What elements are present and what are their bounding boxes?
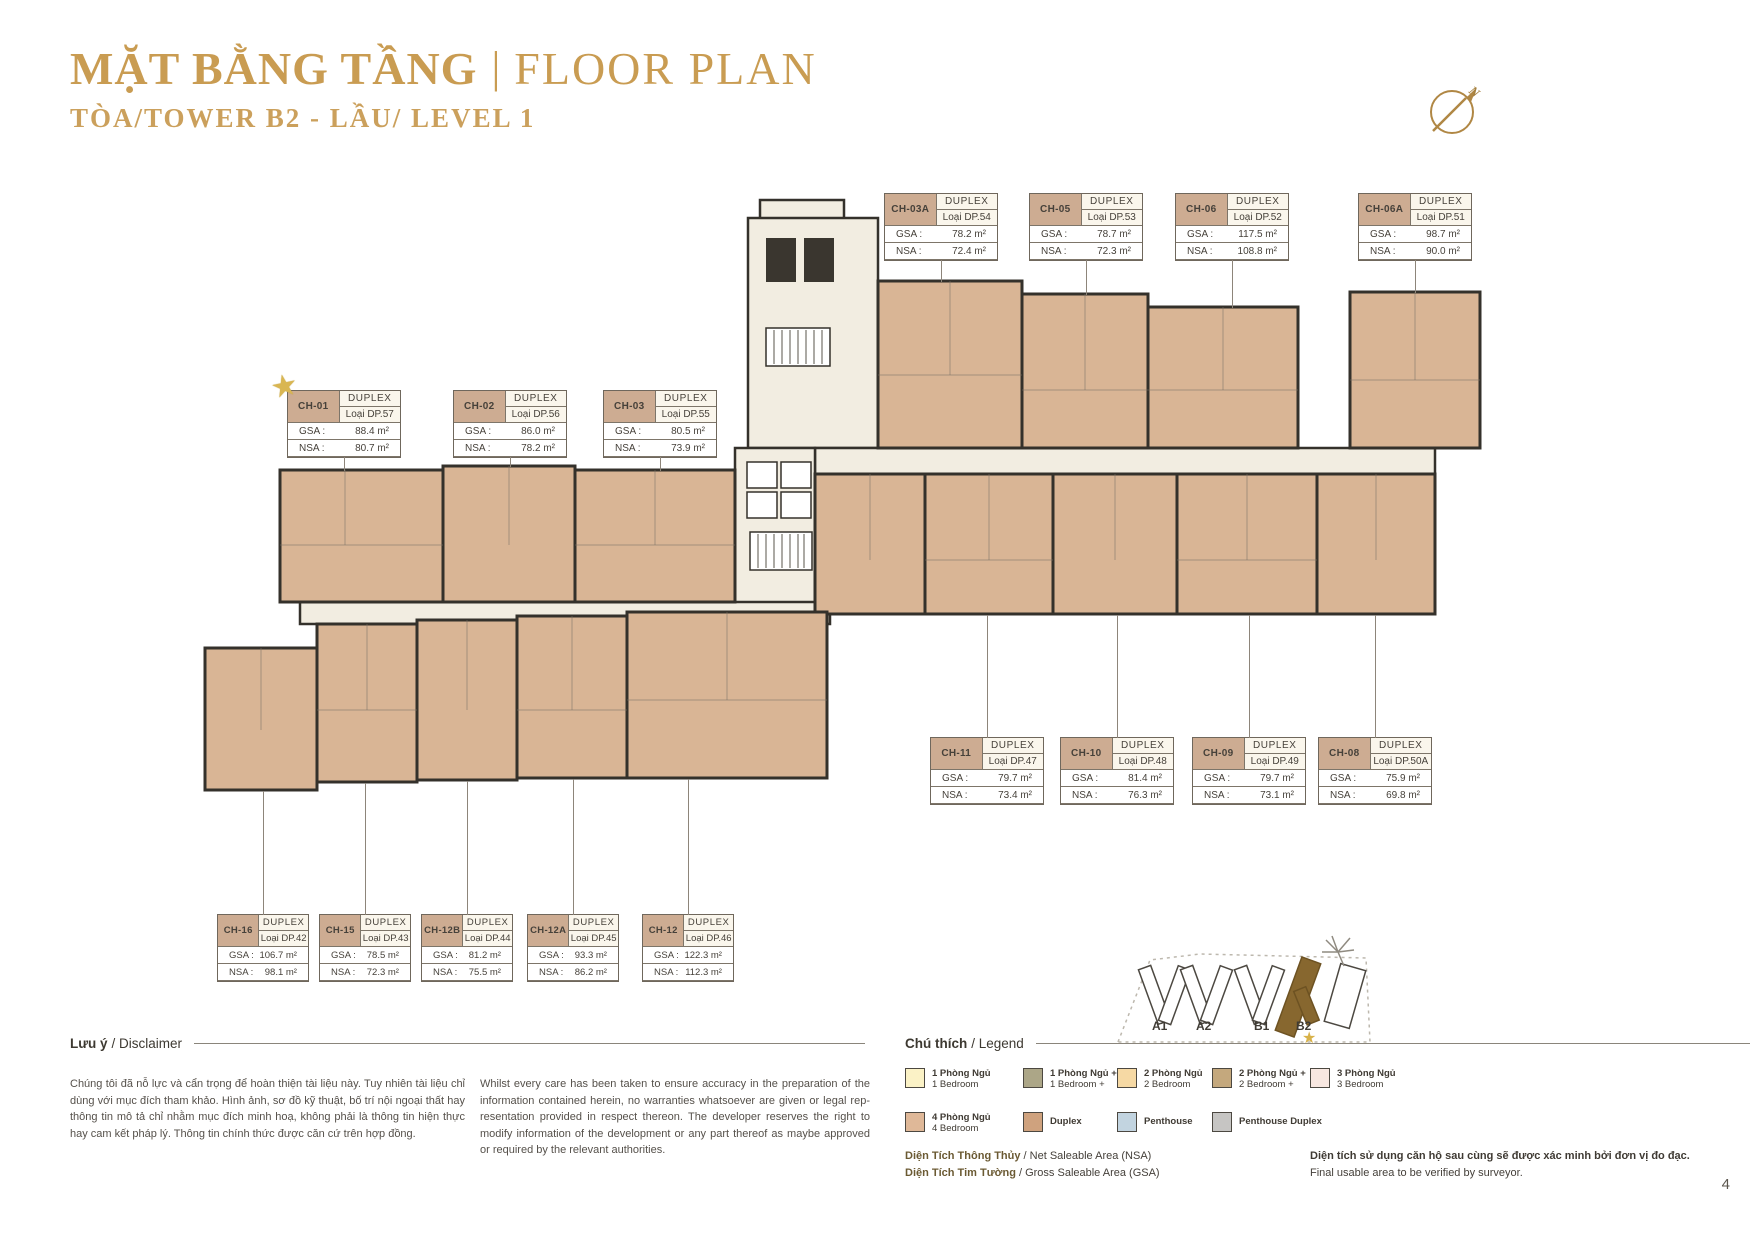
divider-line bbox=[1036, 1043, 1750, 1044]
unit-card: CH-03A DUPLEX Loại DP.54 GSA :78.2 m² NS… bbox=[884, 193, 998, 261]
leader-line bbox=[987, 615, 988, 738]
unit-card: CH-08 DUPLEX Loại DP.50A GSA :75.9 m² NS… bbox=[1318, 737, 1432, 805]
legend-heading: Chú thích / Legend bbox=[905, 1036, 1750, 1051]
gsa-value: 79.7 m² bbox=[998, 773, 1032, 784]
unit-code: CH-16 bbox=[218, 915, 259, 947]
gsa-label: GSA : bbox=[539, 950, 564, 961]
legend-swatch bbox=[905, 1068, 925, 1088]
unit-card: CH-12A DUPLEX Loại DP.45 GSA :93.3 m² NS… bbox=[527, 914, 619, 982]
gsa-value: 78.5 m² bbox=[367, 950, 399, 961]
unit-card: CH-10 DUPLEX Loại DP.48 GSA :81.4 m² NSA… bbox=[1060, 737, 1174, 805]
nsa-value: 90.0 m² bbox=[1426, 246, 1460, 257]
nsa-label: NSA : bbox=[654, 967, 678, 978]
nsa-label: NSA : bbox=[229, 967, 253, 978]
nsa-value: 73.1 m² bbox=[1260, 790, 1294, 801]
nsa-label: NSA : bbox=[1187, 246, 1213, 257]
leader-line bbox=[660, 457, 661, 471]
unit-type-label: DUPLEX bbox=[983, 738, 1043, 754]
gsa-value: 78.7 m² bbox=[1097, 229, 1131, 240]
gsa-label: GSA : bbox=[942, 773, 968, 784]
unit-type-label: DUPLEX bbox=[1082, 194, 1142, 210]
unit-type-label: DUPLEX bbox=[569, 915, 618, 931]
unit-layout-label: Loại DP.46 bbox=[684, 931, 733, 947]
legend-item: Penthouse bbox=[1117, 1112, 1193, 1132]
legend-swatch bbox=[1023, 1112, 1043, 1132]
leader-line bbox=[467, 781, 468, 915]
nsa-value: 112.3 m² bbox=[685, 967, 722, 978]
unit-type-label: DUPLEX bbox=[656, 391, 716, 407]
nsa-label: NSA : bbox=[539, 967, 563, 978]
brochure-page: MẶT BẰNG TẦNG | FLOOR PLAN TÒA/TOWER B2 … bbox=[0, 0, 1754, 1241]
unit-card: CH-12B DUPLEX Loại DP.44 GSA :81.2 m² NS… bbox=[421, 914, 513, 982]
gsa-value: 80.5 m² bbox=[671, 426, 705, 437]
nsa-value: 69.8 m² bbox=[1386, 790, 1420, 801]
stairs-icon bbox=[766, 328, 830, 366]
unit-code: CH-10 bbox=[1061, 738, 1113, 770]
legend-label-vn: Penthouse bbox=[1144, 1116, 1193, 1127]
nsa-value: 76.3 m² bbox=[1128, 790, 1162, 801]
gsa-value: 98.7 m² bbox=[1426, 229, 1460, 240]
compass-icon: N bbox=[1431, 82, 1483, 133]
nsa-label: NSA : bbox=[1370, 246, 1396, 257]
legend-swatch bbox=[905, 1112, 925, 1132]
gsa-value: 117.5 m² bbox=[1238, 229, 1277, 240]
gsa-label: GSA : bbox=[654, 950, 679, 961]
unit-card: CH-03 DUPLEX Loại DP.55 GSA :80.5 m² NSA… bbox=[603, 390, 717, 458]
surveyor-note: Diện tích sử dụng căn hộ sau cùng sẽ đượ… bbox=[1310, 1148, 1740, 1182]
unit-layout-label: Loại DP.42 bbox=[259, 931, 308, 947]
disclaimer-heading: Lưu ý / Disclaimer bbox=[70, 1036, 865, 1051]
nsa-value: 72.3 m² bbox=[1097, 246, 1131, 257]
nsa-value: 72.3 m² bbox=[367, 967, 399, 978]
unit-code: CH-03 bbox=[604, 391, 656, 423]
unit-type-label: DUPLEX bbox=[1411, 194, 1471, 210]
unit-layout-label: Loại DP.54 bbox=[937, 210, 997, 226]
gsa-label: GSA : bbox=[1370, 229, 1396, 240]
legend-label-vn: 2 Phòng Ngủ bbox=[1144, 1068, 1203, 1079]
stairs-icon bbox=[750, 532, 812, 570]
tower-b1-footprint bbox=[1234, 965, 1284, 1024]
nsa-label: NSA : bbox=[1204, 790, 1230, 801]
legend-label-en: 2 Bedroom bbox=[1144, 1079, 1190, 1090]
gsa-label: GSA : bbox=[1330, 773, 1356, 784]
gsa-value: 81.4 m² bbox=[1128, 773, 1162, 784]
nsa-definition-vn: Diện Tích Thông Thủy bbox=[905, 1150, 1021, 1162]
minimap-label-a2: A2 bbox=[1196, 1019, 1212, 1033]
legend-swatch bbox=[1212, 1112, 1232, 1132]
divider-line bbox=[194, 1043, 865, 1044]
nsa-value: 86.2 m² bbox=[575, 967, 607, 978]
legend-label-vn: 1 Phòng Ngủ + bbox=[1050, 1068, 1117, 1079]
gsa-label: GSA : bbox=[1204, 773, 1230, 784]
legend-swatch bbox=[1117, 1068, 1137, 1088]
gsa-label: GSA : bbox=[615, 426, 641, 437]
gsa-label: GSA : bbox=[433, 950, 458, 961]
area-definitions: Diện Tích Thông Thủy / Net Saleable Area… bbox=[905, 1148, 1160, 1182]
legend-item: 4 Phòng Ngủ 4 Bedroom bbox=[905, 1112, 991, 1134]
legend-item: 1 Phòng Ngủ + 1 Bedroom + bbox=[1023, 1068, 1117, 1090]
nsa-value: 73.9 m² bbox=[671, 443, 705, 454]
gsa-definition-vn: Diện Tích Tim Tường bbox=[905, 1167, 1016, 1179]
site-minimap: A1 A2 B1 B2 ★ bbox=[1118, 936, 1370, 1047]
nsa-value: 78.2 m² bbox=[521, 443, 555, 454]
unit-code: CH-15 bbox=[320, 915, 361, 947]
unit-layout-label: Loại DP.44 bbox=[463, 931, 512, 947]
floor-plan-canvas: N A1 A2 B1 B2 bbox=[0, 0, 1754, 1241]
nsa-value: 75.5 m² bbox=[469, 967, 501, 978]
disclaimer-text-vietnamese: Chúng tôi đã nỗ lực và cẩn trọng để hoàn… bbox=[70, 1076, 465, 1142]
nsa-label: NSA : bbox=[433, 967, 457, 978]
tower-right-footprint bbox=[1324, 964, 1366, 1029]
nsa-label: NSA : bbox=[299, 443, 325, 454]
gsa-label: GSA : bbox=[331, 950, 356, 961]
unit-layout-label: Loại DP.55 bbox=[656, 407, 716, 423]
unit-layout-label: Loại DP.51 bbox=[1411, 210, 1471, 226]
legend-label-en: 1 Bedroom + bbox=[1050, 1079, 1105, 1090]
leader-line bbox=[1117, 615, 1118, 738]
unit-layout-label: Loại DP.57 bbox=[340, 407, 400, 423]
gsa-definition-en: / Gross Saleable Area (GSA) bbox=[1016, 1167, 1160, 1179]
nsa-label: NSA : bbox=[615, 443, 641, 454]
unit-code: CH-09 bbox=[1193, 738, 1245, 770]
unit-type-label: DUPLEX bbox=[259, 915, 308, 931]
unit-type-label: DUPLEX bbox=[937, 194, 997, 210]
unit-card: CH-06A DUPLEX Loại DP.51 GSA :98.7 m² NS… bbox=[1358, 193, 1472, 261]
unit-card: CH-02 DUPLEX Loại DP.56 GSA :86.0 m² NSA… bbox=[453, 390, 567, 458]
unit-card: CH-15 DUPLEX Loại DP.43 GSA :78.5 m² NSA… bbox=[319, 914, 411, 982]
leader-line bbox=[941, 260, 942, 282]
unit-layout-label: Loại DP.52 bbox=[1228, 210, 1288, 226]
legend-label-vn: 2 Phòng Ngủ + bbox=[1239, 1068, 1306, 1079]
star-icon: ★ bbox=[268, 370, 301, 405]
minimap-label-a1: A1 bbox=[1152, 1019, 1168, 1033]
unit-card: CH-16 DUPLEX Loại DP.42 GSA :106.7 m² NS… bbox=[217, 914, 309, 982]
unit-code: CH-06 bbox=[1176, 194, 1228, 226]
page-number: 4 bbox=[1722, 1176, 1730, 1193]
surveyor-note-vn: Diện tích sử dụng căn hộ sau cùng sẽ đượ… bbox=[1310, 1148, 1740, 1165]
unit-card: CH-01 DUPLEX Loại DP.57 GSA :88.4 m² NSA… bbox=[287, 390, 401, 458]
leader-line bbox=[1086, 260, 1087, 295]
gsa-label: GSA : bbox=[299, 426, 325, 437]
leader-line bbox=[1375, 615, 1376, 738]
legend-label-en: 1 Bedroom bbox=[932, 1079, 978, 1090]
leader-line bbox=[1249, 615, 1250, 738]
legend-swatch bbox=[1212, 1068, 1232, 1088]
unit-card: CH-12 DUPLEX Loại DP.46 GSA :122.3 m² NS… bbox=[642, 914, 734, 982]
gsa-value: 75.9 m² bbox=[1386, 773, 1420, 784]
legend-item: 2 Phòng Ngủ + 2 Bedroom + bbox=[1212, 1068, 1306, 1090]
unit-type-label: DUPLEX bbox=[1371, 738, 1431, 754]
unit-type-label: DUPLEX bbox=[1113, 738, 1173, 754]
gsa-value: 88.4 m² bbox=[355, 426, 389, 437]
gsa-value: 81.2 m² bbox=[469, 950, 501, 961]
unit-code: CH-12A bbox=[528, 915, 569, 947]
tower-a2-footprint bbox=[1180, 965, 1232, 1024]
floor-plan bbox=[205, 200, 1480, 790]
leader-line bbox=[365, 783, 366, 915]
unit-code: CH-08 bbox=[1319, 738, 1371, 770]
unit-code: CH-03A bbox=[885, 194, 937, 226]
gsa-label: GSA : bbox=[1187, 229, 1213, 240]
disclaimer-heading-vn: Lưu ý bbox=[70, 1036, 108, 1051]
gsa-value: 93.3 m² bbox=[575, 950, 607, 961]
nsa-value: 80.7 m² bbox=[355, 443, 389, 454]
nsa-label: NSA : bbox=[465, 443, 491, 454]
nsa-value: 108.8 m² bbox=[1238, 246, 1277, 257]
unit-type-label: DUPLEX bbox=[1245, 738, 1305, 754]
unit-type-label: DUPLEX bbox=[506, 391, 566, 407]
tree-icon bbox=[1322, 936, 1354, 966]
gsa-label: GSA : bbox=[465, 426, 491, 437]
legend-item: 2 Phòng Ngủ 2 Bedroom bbox=[1117, 1068, 1203, 1090]
disclaimer-text-english: Whilst every care has been taken to ensu… bbox=[480, 1076, 870, 1159]
legend-swatch bbox=[1310, 1068, 1330, 1088]
legend-swatch bbox=[1117, 1112, 1137, 1132]
gsa-label: GSA : bbox=[1072, 773, 1098, 784]
nsa-label: NSA : bbox=[331, 967, 355, 978]
unit-card: CH-05 DUPLEX Loại DP.53 GSA :78.7 m² NSA… bbox=[1029, 193, 1143, 261]
unit-type-label: DUPLEX bbox=[1228, 194, 1288, 210]
unit-layout-label: Loại DP.49 bbox=[1245, 754, 1305, 770]
disclaimer-heading-en: / Disclaimer bbox=[112, 1036, 183, 1051]
unit-code: CH-12B bbox=[422, 915, 463, 947]
gsa-value: 78.2 m² bbox=[952, 229, 986, 240]
legend-label-en: 3 Bedroom bbox=[1337, 1079, 1383, 1090]
legend-item: 1 Phòng Ngủ 1 Bedroom bbox=[905, 1068, 991, 1090]
nsa-label: NSA : bbox=[942, 790, 968, 801]
legend-label-en: 4 Bedroom bbox=[932, 1123, 978, 1134]
leader-line bbox=[1232, 260, 1233, 308]
legend-heading-vn: Chú thích bbox=[905, 1036, 967, 1051]
gsa-label: GSA : bbox=[896, 229, 922, 240]
nsa-definition-en: / Net Saleable Area (NSA) bbox=[1021, 1150, 1152, 1162]
unit-layout-label: Loại DP.48 bbox=[1113, 754, 1173, 770]
nsa-label: NSA : bbox=[1330, 790, 1356, 801]
unit-code: CH-11 bbox=[931, 738, 983, 770]
unit-type-label: DUPLEX bbox=[340, 391, 400, 407]
legend-label-vn: 3 Phòng Ngủ bbox=[1337, 1068, 1396, 1079]
nsa-value: 72.4 m² bbox=[952, 246, 986, 257]
legend-label-en: 2 Bedroom + bbox=[1239, 1079, 1294, 1090]
legend-label-vn: Penthouse Duplex bbox=[1239, 1116, 1322, 1127]
nsa-label: NSA : bbox=[1072, 790, 1098, 801]
unit-code: CH-12 bbox=[643, 915, 684, 947]
unit-layout-label: Loại DP.45 bbox=[569, 931, 618, 947]
gsa-value: 106.7 m² bbox=[259, 950, 297, 961]
nsa-label: NSA : bbox=[896, 246, 922, 257]
gsa-value: 86.0 m² bbox=[521, 426, 555, 437]
leader-line bbox=[573, 779, 574, 915]
legend-item: Duplex bbox=[1023, 1112, 1082, 1132]
unit-card: CH-11 DUPLEX Loại DP.47 GSA :79.7 m² NSA… bbox=[930, 737, 1044, 805]
unit-layout-label: Loại DP.43 bbox=[361, 931, 410, 947]
gsa-label: GSA : bbox=[229, 950, 254, 961]
leader-line bbox=[344, 457, 345, 471]
leader-line bbox=[263, 791, 264, 915]
unit-layout-label: Loại DP.50A bbox=[1371, 754, 1431, 770]
nsa-value: 98.1 m² bbox=[265, 967, 297, 978]
unit-type-label: DUPLEX bbox=[463, 915, 512, 931]
unit-type-label: DUPLEX bbox=[684, 915, 733, 931]
surveyor-note-en: Final usable area to be verified by surv… bbox=[1310, 1165, 1740, 1182]
unit-layout-label: Loại DP.47 bbox=[983, 754, 1043, 770]
legend-heading-en: / Legend bbox=[971, 1036, 1024, 1051]
legend-label-vn: 1 Phòng Ngủ bbox=[932, 1068, 991, 1079]
unit-layout-label: Loại DP.53 bbox=[1082, 210, 1142, 226]
unit-card: CH-09 DUPLEX Loại DP.49 GSA :79.7 m² NSA… bbox=[1192, 737, 1306, 805]
legend-item: 3 Phòng Ngủ 3 Bedroom bbox=[1310, 1068, 1396, 1090]
nsa-label: NSA : bbox=[1041, 246, 1067, 257]
unit-code: CH-06A bbox=[1359, 194, 1411, 226]
gsa-value: 122.3 m² bbox=[684, 950, 722, 961]
gsa-value: 79.7 m² bbox=[1260, 773, 1294, 784]
minimap-label-b1: B1 bbox=[1254, 1019, 1270, 1033]
leader-line bbox=[510, 457, 511, 467]
legend-label-vn: 4 Phòng Ngủ bbox=[932, 1112, 991, 1123]
legend-label-vn: Duplex bbox=[1050, 1116, 1082, 1127]
unit-code: CH-05 bbox=[1030, 194, 1082, 226]
leader-line bbox=[1415, 260, 1416, 293]
nsa-value: 73.4 m² bbox=[998, 790, 1032, 801]
unit-code: CH-02 bbox=[454, 391, 506, 423]
unit-type-label: DUPLEX bbox=[361, 915, 410, 931]
legend-item: Penthouse Duplex bbox=[1212, 1112, 1322, 1132]
unit-card: CH-06 DUPLEX Loại DP.52 GSA :117.5 m² NS… bbox=[1175, 193, 1289, 261]
unit-layout-label: Loại DP.56 bbox=[506, 407, 566, 423]
gsa-label: GSA : bbox=[1041, 229, 1067, 240]
legend-swatch bbox=[1023, 1068, 1043, 1088]
leader-line bbox=[688, 779, 689, 915]
